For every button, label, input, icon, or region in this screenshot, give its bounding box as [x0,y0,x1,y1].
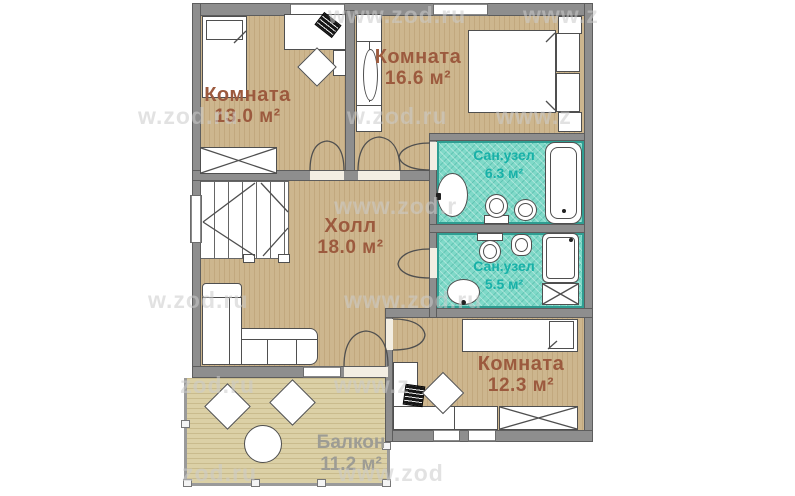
watermark: www.zod.ru [344,287,482,314]
room-name: Комната [358,46,478,68]
watermark: www.zod.r [334,193,457,220]
toilet-bowl [483,244,497,259]
wall-between-rooms [345,10,355,181]
watermark: zod.ru [180,372,255,399]
room-area: 12.3 м² [462,375,580,396]
wall-bath-top [429,133,585,141]
watermark: w.zod.ru [148,287,248,314]
wardrobe-room13 [200,147,277,174]
watermark: www.z [334,372,410,399]
door-opening-bath55 [430,248,437,278]
shower-drain [569,238,573,242]
staircase [200,181,289,259]
label-hall: Холл 18.0 м² [298,215,403,259]
watermark: zod.ru [182,460,257,487]
sofa-seam [242,339,317,340]
headboard-room16 [556,33,580,72]
wall-bath-middle [429,224,585,233]
window-room12-bottom-1 [433,429,460,442]
bidet-bath55 [511,234,532,256]
door-opening-room16 [358,171,400,180]
balcony-post [181,420,190,428]
sofa-seam [296,339,297,364]
balcony-post [317,479,326,487]
watermark: w.zod.ru [138,103,238,130]
desk-seam [454,407,455,429]
desk-shelf-room13 [333,50,346,76]
watermark: www.zod [338,460,444,487]
floor-plan: Комната 13.0 м² Комната 16.6 м² Сан.узел… [0,0,795,496]
room-name: Сан.узел [448,258,560,276]
door-opening-bath63 [430,142,437,170]
window-room12-bottom-2 [468,429,496,442]
bidet-bowl [515,238,528,252]
room-area: 6.3 м² [448,165,560,183]
stair-newel [243,254,255,263]
table-balcony [244,425,282,463]
watermark: w.zod.ru [347,103,447,130]
sofa-seam [267,339,268,364]
bed-double-room16 [468,30,556,113]
watermark: www.z [496,103,572,130]
watermark: www.z [523,2,599,29]
room-name: Балкон [292,432,410,454]
label-bath63: Сан.узел 6.3 м² [448,147,560,182]
watermark: www.zod.ru [328,2,466,29]
room-area: 16.6 м² [358,68,478,89]
room-area: 18.0 м² [298,237,403,258]
pillow-room13 [206,20,243,40]
window-hall-left [190,195,202,243]
room-name: Сан.узел [448,147,560,165]
toilet-bowl [489,198,504,214]
wall-left [192,3,201,378]
room-name: Комната [462,353,580,375]
label-room16: Комната 16.6 м² [358,46,478,90]
toilet-bath63 [485,194,508,218]
bathtub-drain [562,209,566,213]
bidet-bowl [518,203,533,217]
wardrobe-room12 [499,406,578,430]
pillow-room12 [549,321,574,349]
door-opening-room12 [386,319,393,350]
stair-newel [278,254,290,263]
sofa-bottom-section [241,328,318,365]
label-room12: Комната 12.3 м² [462,353,580,397]
door-opening-room13 [310,171,344,180]
bidet-bath63 [514,199,537,221]
wall-right [584,3,593,442]
